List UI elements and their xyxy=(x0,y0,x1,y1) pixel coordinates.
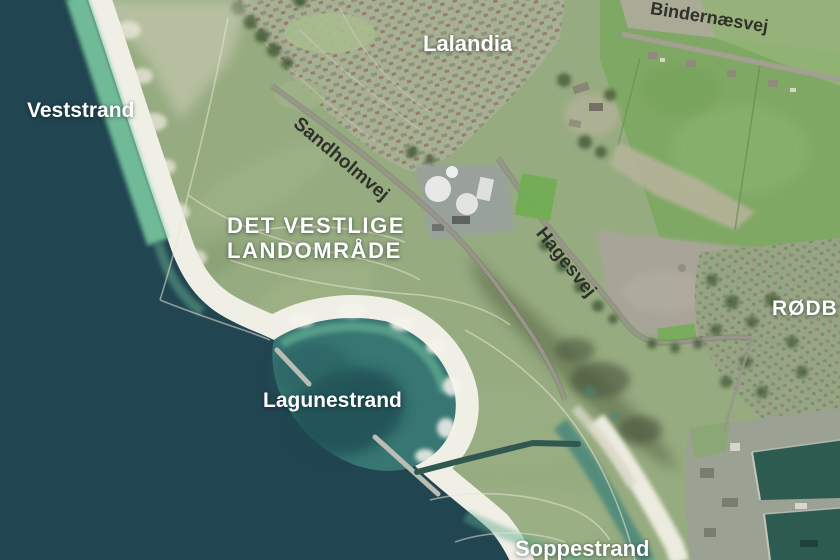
map-label-roedby: RØDB xyxy=(772,298,838,320)
map-label-det-vestlige-line1: DET VESTLIGE xyxy=(227,213,405,238)
aerial-map: Veststrand Lalandia Bindernæsvej Sandhol… xyxy=(0,0,840,560)
map-label-det-vestlige-landomraade: DET VESTLIGE LANDOMRÅDE xyxy=(227,213,405,263)
map-label-lalandia: Lalandia xyxy=(423,32,512,55)
map-label-det-vestlige-line2: LANDOMRÅDE xyxy=(227,238,405,263)
aerial-basemap xyxy=(0,0,840,560)
map-label-lagunestrand: Lagunestrand xyxy=(263,390,402,412)
map-label-veststrand: Veststrand xyxy=(27,100,134,122)
map-label-soppestrand: Soppestrand xyxy=(515,537,649,560)
